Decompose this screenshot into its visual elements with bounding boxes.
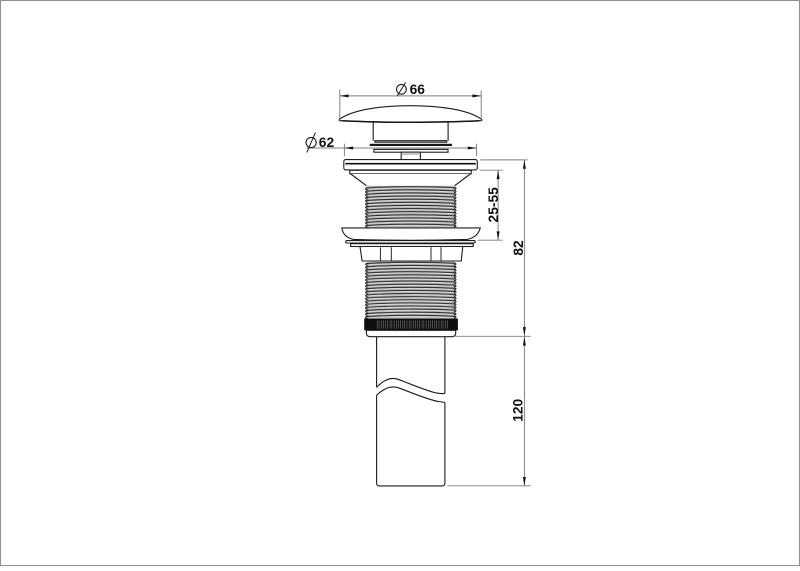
svg-text:25-55: 25-55 <box>486 187 501 223</box>
svg-text:62: 62 <box>319 135 335 150</box>
svg-text:66: 66 <box>410 82 426 97</box>
svg-text:82: 82 <box>511 240 526 256</box>
svg-text:120: 120 <box>511 398 526 421</box>
